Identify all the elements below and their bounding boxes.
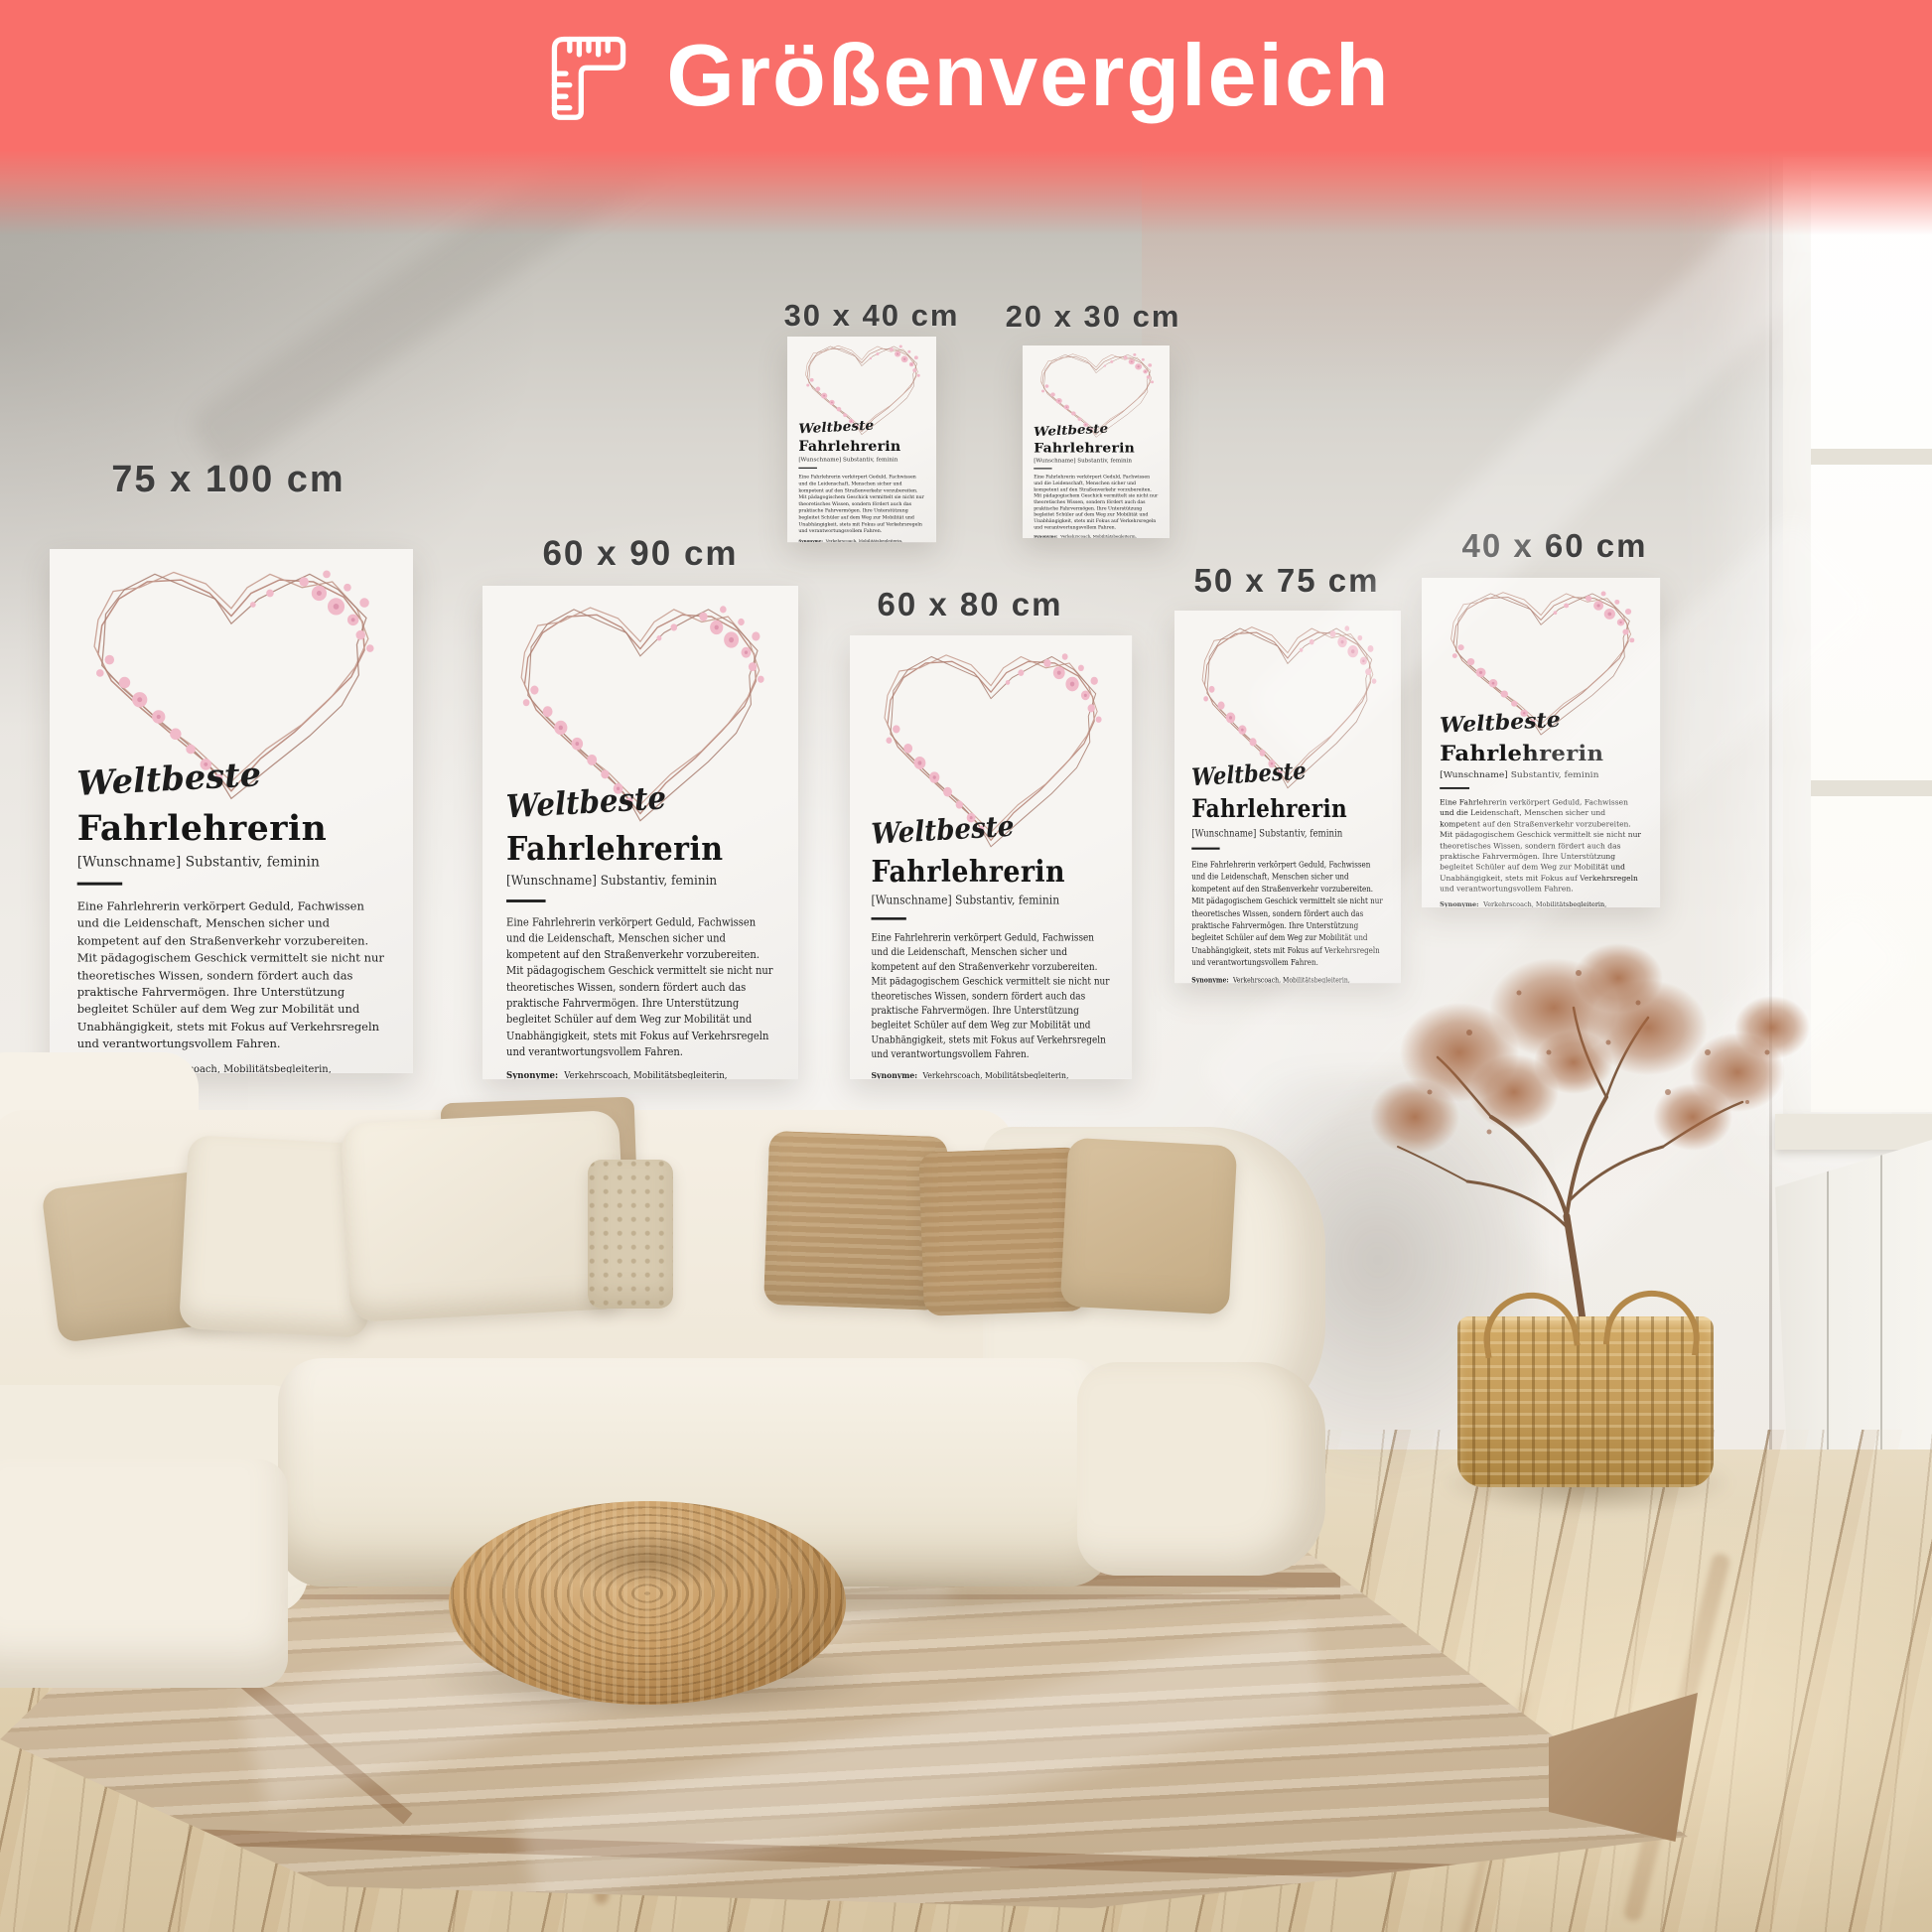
- poster-title: Fahrlehrerin: [1191, 794, 1383, 823]
- wicker-pouf: [449, 1501, 846, 1705]
- poster-20x30: Weltbeste Fahrlehrerin [Wunschname] Subs…: [1023, 345, 1170, 538]
- size-label-20x30: 20 x 30 cm: [1006, 299, 1181, 335]
- window-mullion: [1811, 449, 1932, 465]
- poster-synonyms-label: Synonyme:: [1191, 977, 1228, 984]
- poster-synonyms: Verkehrscoach, Mobilitätsbegleiterin, Fa…: [1060, 535, 1159, 538]
- sofa-seat-chaise: [1077, 1362, 1325, 1576]
- title-banner: Größenvergleich: [0, 0, 1932, 151]
- banner-fade: [0, 150, 1932, 235]
- poster-divider: [506, 899, 546, 902]
- poster-synonyms: Verkehrscoach, Mobilitätsbegleiterin, Fa…: [923, 1071, 1111, 1079]
- poster-divider: [1191, 848, 1219, 850]
- size-label-75x100: 75 x 100 cm: [111, 459, 345, 501]
- poster-divider: [77, 883, 122, 886]
- pillow-beige-chaise: [1060, 1138, 1238, 1315]
- size-label-30x40: 30 x 40 cm: [784, 298, 960, 334]
- poster-script-title: Weltbeste: [505, 779, 667, 826]
- poster-title: Fahrlehrerin: [872, 855, 1111, 890]
- poster-synonyms-label: Synonyme:: [798, 539, 823, 543]
- poster-description: Eine Fahrlehrerin verkörpert Geduld, Fac…: [1034, 474, 1159, 530]
- size-label-60x80: 60 x 80 cm: [878, 586, 1063, 623]
- poster-subtitle: [Wunschname] Substantiv, feminin: [506, 874, 774, 889]
- poster-title: Fahrlehrerin: [798, 438, 924, 454]
- poster-subtitle: [Wunschname] Substantiv, feminin: [798, 457, 924, 463]
- poster-synonyms-label: Synonyme:: [506, 1070, 558, 1079]
- poster-divider: [1034, 468, 1051, 469]
- poster-description: Eine Fahrlehrerin verkörpert Geduld, Fac…: [798, 474, 924, 534]
- pillow-speckled: [588, 1160, 673, 1309]
- poster-script-title: Weltbeste: [871, 810, 1015, 852]
- poster-divider: [1440, 787, 1469, 789]
- dried-tree-plant: [1320, 933, 1837, 1350]
- poster-75x100: Weltbeste Fahrlehrerin [Wunschname] Subs…: [50, 549, 413, 1073]
- folding-ruler-icon: [541, 28, 636, 123]
- poster-synonyms: Verkehrscoach, Mobilitätsbegleiterin, Fa…: [826, 539, 925, 543]
- size-label-50x75: 50 x 75 cm: [1194, 562, 1380, 600]
- poster-script-title: Weltbeste: [76, 755, 262, 804]
- size-label-60x90: 60 x 90 cm: [542, 534, 738, 574]
- poster-synonyms-label: Synonyme:: [1034, 535, 1057, 538]
- poster-title: Fahrlehrerin: [77, 808, 386, 849]
- poster-title: Fahrlehrerin: [506, 830, 774, 868]
- poster-synonyms-label: Synonyme:: [872, 1071, 918, 1079]
- poster-description: Eine Fahrlehrerin verkörpert Geduld, Fac…: [872, 931, 1111, 1062]
- poster-subtitle: [Wunschname] Substantiv, feminin: [872, 894, 1111, 906]
- window-mullion: [1811, 780, 1932, 796]
- poster-divider: [798, 468, 817, 469]
- poster-script-title: Weltbeste: [1034, 421, 1109, 439]
- product-mockup-scene: 75 x 100 cm Weltbeste Fahrlehrerin [Wuns…: [0, 0, 1932, 1932]
- poster-script-title: Weltbeste: [798, 417, 875, 436]
- poster-title: Fahrlehrerin: [1034, 441, 1159, 456]
- poster-60x80: Weltbeste Fahrlehrerin [Wunschname] Subs…: [850, 635, 1132, 1079]
- poster-divider: [872, 917, 906, 920]
- pillow-white-large: [341, 1110, 628, 1322]
- poster-synonyms: Verkehrscoach, Mobilitätsbegleiterin, Fa…: [564, 1070, 774, 1079]
- poster-subtitle: [Wunschname] Substantiv, feminin: [77, 855, 386, 871]
- poster-description: Eine Fahrlehrerin verkörpert Geduld, Fac…: [77, 898, 386, 1053]
- pouf-top-dip: [538, 1529, 757, 1588]
- poster-script-title: Weltbeste: [1439, 707, 1561, 738]
- poster-script-title: Weltbeste: [1191, 757, 1308, 791]
- sofa-front-left: [0, 1459, 288, 1688]
- poster-subtitle: [Wunschname] Substantiv, feminin: [1034, 458, 1159, 464]
- poster-subtitle: [Wunschname] Substantiv, feminin: [1191, 828, 1383, 839]
- poster-description: Eine Fahrlehrerin verkörpert Geduld, Fac…: [506, 914, 774, 1060]
- banner-title: Größenvergleich: [666, 25, 1390, 126]
- poster-30x40: Weltbeste Fahrlehrerin [Wunschname] Subs…: [787, 337, 936, 542]
- poster-60x90: Weltbeste Fahrlehrerin [Wunschname] Subs…: [483, 586, 798, 1079]
